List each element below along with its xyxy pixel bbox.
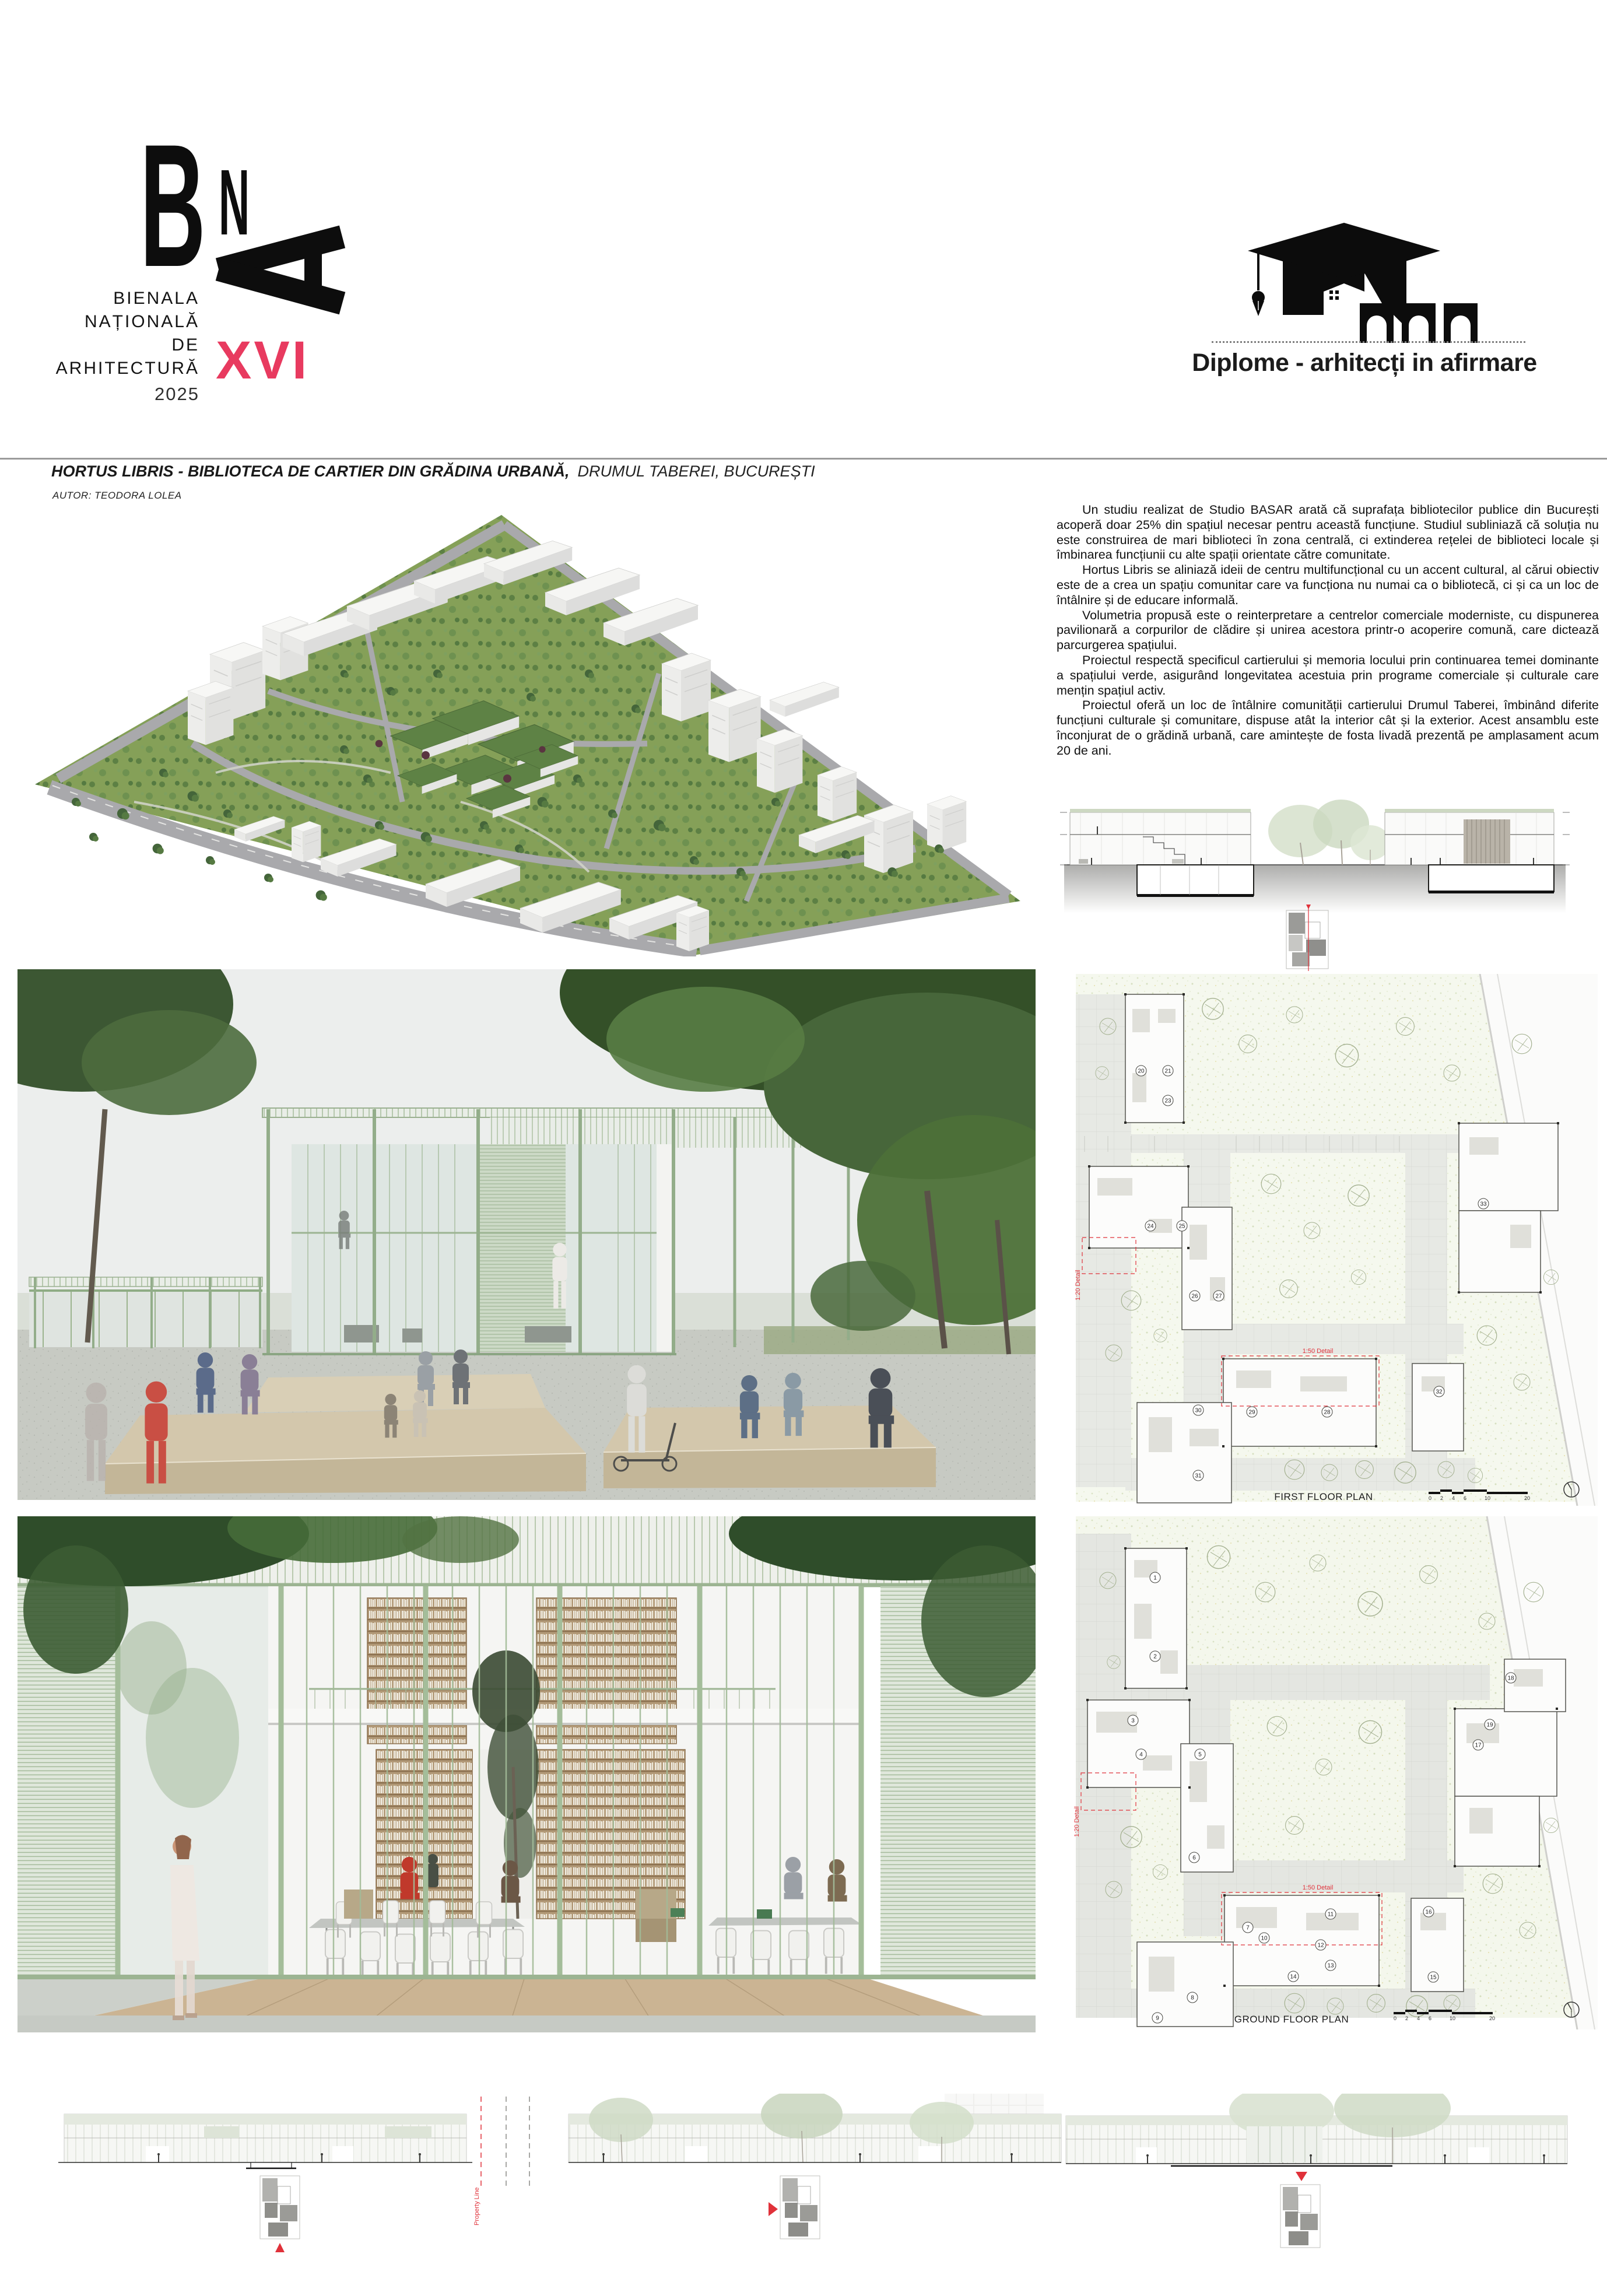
svg-text:10: 10 [1261, 1936, 1268, 1942]
first-floor-plan: 1:50 Detail 1:20 Detail 20 21 23 24 25 2… [1044, 974, 1598, 1506]
section-drawing [1055, 796, 1574, 971]
exterior-render [17, 969, 1036, 1500]
interior-render [17, 1516, 1036, 2032]
detail-note: 1:50 Detail [1303, 1884, 1334, 1891]
svg-text:18: 18 [1507, 1675, 1514, 1682]
section-right-building [1385, 809, 1554, 865]
detail-note: 1:20 Detail [1075, 1270, 1082, 1301]
red-triangle-down [1296, 2172, 1307, 2181]
svg-text:4: 4 [1417, 2015, 1420, 2021]
red-triangle-right [769, 2202, 778, 2216]
key-plan-1 [260, 2176, 300, 2252]
svg-text:17: 17 [1475, 1743, 1482, 1749]
svg-text:20: 20 [1138, 1068, 1145, 1075]
svg-text:20: 20 [1489, 2015, 1495, 2021]
elevation-1 [58, 2114, 472, 2168]
svg-text:29: 29 [1248, 1410, 1255, 1416]
intro-paragraph: Volumetria propusă este o reinterpretare… [1057, 608, 1599, 653]
section-trees [1268, 800, 1390, 865]
svg-text:30: 30 [1195, 1408, 1202, 1414]
svg-text:2: 2 [1440, 1495, 1443, 1501]
pavement [17, 2015, 1036, 2032]
svg-text:19: 19 [1486, 1722, 1493, 1729]
svg-text:13: 13 [1327, 1963, 1334, 1969]
svg-text:10: 10 [1450, 2015, 1455, 2021]
section-key-plan [1286, 905, 1328, 971]
key-plan-3 [1280, 2172, 1320, 2248]
svg-text:6: 6 [1429, 2015, 1431, 2021]
svg-text:11: 11 [1328, 1912, 1334, 1918]
first-floor-plan-label: FIRST FLOOR PLAN [1274, 1491, 1373, 1502]
svg-text:20: 20 [1524, 1495, 1530, 1501]
bna-line: BIENALA [52, 287, 199, 310]
svg-text:21: 21 [1164, 1068, 1171, 1075]
intro-paragraph: Un studiu realizat de Studio BASAR arată… [1057, 503, 1599, 563]
diplome-dotted-divider [1212, 341, 1525, 343]
poster-board: B N BIENALA NAȚIONALĂ DE ARHITECTURĂ 202… [0, 0, 1607, 2296]
svg-text:6: 6 [1464, 1495, 1466, 1501]
svg-text:8: 8 [1191, 1995, 1194, 2001]
svg-text:28: 28 [1324, 1410, 1331, 1416]
svg-text:26: 26 [1191, 1294, 1198, 1300]
intro-paragraph: Proiectul respectă specificul cartierulu… [1057, 653, 1599, 698]
svg-text:25: 25 [1178, 1224, 1185, 1230]
bna-text-lines: BIENALA NAȚIONALĂ DE ARHITECTURĂ [52, 287, 199, 380]
elevation-3 [1066, 2094, 1567, 2166]
svg-text:16: 16 [1425, 1909, 1432, 1916]
detail-note: 1:20 Detail [1073, 1806, 1080, 1837]
bna-letter-n: N [219, 150, 250, 255]
bna-line: ARHITECTURĂ [52, 357, 199, 380]
project-location: DRUMUL TABEREI, BUCUREȘTI [578, 462, 815, 480]
bna-letter-b: B [140, 108, 206, 303]
aerial-site-render [17, 499, 1036, 956]
project-titlebar: HORTUS LIBRIS- BIBLIOTECA DE CARTIER DIN… [51, 462, 1031, 481]
svg-text:5: 5 [1198, 1752, 1202, 1758]
svg-text:12: 12 [1317, 1943, 1324, 1949]
svg-text:4: 4 [1139, 1752, 1143, 1758]
header-divider [0, 458, 1607, 460]
section-left-building [1070, 809, 1251, 865]
svg-text:0: 0 [1429, 1495, 1431, 1501]
intro-text: Un studiu realizat de Studio BASAR arată… [1057, 503, 1599, 759]
bna-line: NAȚIONALĂ [52, 310, 199, 334]
ground-floor-plan-label: GROUND FLOOR PLAN [1234, 2014, 1349, 2025]
property-line-label: Property Line [473, 2188, 480, 2225]
svg-text:2: 2 [1405, 2015, 1408, 2021]
svg-text:2: 2 [1153, 1654, 1157, 1660]
svg-text:31: 31 [1195, 1473, 1202, 1480]
key-plan-2 [769, 2176, 820, 2239]
svg-text:9: 9 [1156, 2015, 1159, 2022]
svg-text:23: 23 [1164, 1098, 1171, 1105]
svg-text:14: 14 [1290, 1974, 1297, 1980]
svg-text:0: 0 [1394, 2015, 1397, 2021]
intro-paragraph: Proiectul oferă un loc de întâlnire comu… [1057, 698, 1599, 758]
svg-text:3: 3 [1131, 1718, 1135, 1724]
red-triangle-up [275, 2243, 285, 2252]
detail-note: 1:50 Detail [1303, 1348, 1334, 1355]
arches-icon [1360, 303, 1478, 343]
svg-text:4: 4 [1452, 1495, 1455, 1501]
svg-text:10: 10 [1485, 1495, 1490, 1501]
svg-text:7: 7 [1246, 1925, 1250, 1932]
svg-text:33: 33 [1480, 1201, 1487, 1208]
bna-year: 2025 [52, 384, 199, 405]
svg-text:1: 1 [1153, 1575, 1157, 1582]
svg-text:24: 24 [1147, 1224, 1154, 1230]
elevations-strip: Property Line [17, 2094, 1607, 2286]
project-name: HORTUS LIBRIS [51, 462, 174, 480]
svg-text:6: 6 [1192, 1855, 1196, 1862]
graduation-cap-arches-icon [1190, 216, 1539, 350]
ground-floor-plan: 1:50 Detail 1:20 Detail 1 2 3 4 5 6 7 8 … [1044, 1516, 1598, 2029]
project-subtitle: - BIBLIOTECA DE CARTIER DIN GRĂDINA URBA… [178, 462, 570, 480]
svg-text:32: 32 [1436, 1389, 1443, 1396]
diplome-logo [1190, 216, 1539, 353]
bna-line: DE [52, 334, 199, 357]
diplome-label: Diplome - arhitecți in afirmare [1190, 349, 1539, 377]
bna-edition: XVI [216, 330, 309, 391]
svg-text:27: 27 [1215, 1294, 1222, 1300]
property-line-markers: Property Line [473, 2097, 529, 2225]
intro-paragraph: Hortus Libris se aliniază ideii de centr… [1057, 563, 1599, 608]
svg-text:15: 15 [1430, 1975, 1437, 1981]
